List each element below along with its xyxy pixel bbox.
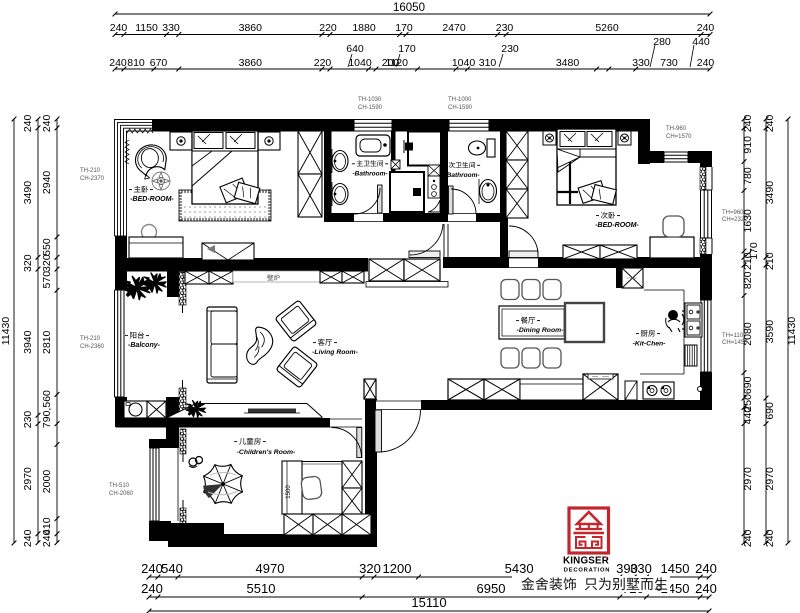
svg-text:3590: 3590 [764,320,776,344]
svg-text:240: 240 [22,114,34,132]
svg-text:CH-2060: CH-2060 [109,491,134,497]
svg-text:320: 320 [41,254,53,272]
svg-text:330: 330 [162,22,180,34]
svg-text:240: 240 [764,529,776,547]
svg-text:690: 690 [764,402,776,420]
svg-text:DECORATION: DECORATION [564,568,611,574]
svg-text:TH=1100: TH=1100 [722,333,747,339]
svg-text:2940: 2940 [41,171,53,195]
svg-text:790,560: 790,560 [41,390,53,428]
svg-text:330: 330 [630,561,652,576]
svg-text:-Bathroom-: -Bathroom- [444,172,479,179]
svg-text:670: 670 [150,57,168,69]
svg-text:TH-510: TH-510 [109,483,130,489]
svg-text:2000: 2000 [41,470,53,494]
svg-text:170: 170 [395,22,413,34]
svg-text:640: 640 [346,43,364,55]
svg-text:540: 540 [161,561,183,576]
svg-text:910: 910 [742,136,754,154]
svg-text:1150: 1150 [135,22,158,34]
svg-text:570: 570 [41,271,53,289]
svg-text:220: 220 [314,57,332,69]
svg-text:220: 220 [319,22,337,34]
svg-text:3860: 3860 [239,57,263,69]
svg-text:-Living Room-: -Living Room- [312,349,358,356]
svg-text:240: 240 [764,114,776,132]
svg-text:11430: 11430 [786,317,798,346]
svg-text:TH=960: TH=960 [722,210,744,216]
svg-text:230: 230 [501,43,519,55]
svg-text:11430: 11430 [0,317,12,346]
svg-text:-Children's Room-: -Children's Room- [237,449,296,456]
svg-text:320: 320 [22,254,34,272]
svg-text:240: 240 [141,581,163,596]
svg-text:TH-1030: TH-1030 [358,97,382,103]
svg-text:240: 240 [695,561,717,576]
svg-text:-Balcony-: -Balcony- [128,342,161,349]
svg-text:CH-1590: CH-1590 [448,105,473,111]
svg-text:240: 240 [742,114,754,132]
svg-text:440: 440 [692,36,710,48]
svg-text:16050: 16050 [393,2,425,14]
svg-text:240: 240 [697,22,715,34]
svg-text:CH=1450: CH=1450 [722,340,748,346]
svg-text:-Kit-Chen-: -Kit-Chen- [633,341,667,348]
svg-text:5510: 5510 [247,581,276,596]
svg-text:CH-1590: CH-1590 [358,105,383,111]
svg-text:1120: 1120 [385,57,408,69]
svg-text:240: 240 [742,529,754,547]
svg-text:320: 320 [359,561,381,576]
svg-text:240: 240 [697,57,715,69]
svg-text:1880: 1880 [352,22,376,34]
svg-text:TH-210: TH-210 [80,336,101,342]
svg-text:TH-210: TH-210 [80,168,101,174]
svg-text:690: 690 [742,376,754,394]
svg-text:2970: 2970 [764,467,776,491]
svg-text:CH=1570: CH=1570 [666,134,692,140]
svg-text:280: 280 [653,36,671,48]
svg-text:1040: 1040 [452,57,476,69]
svg-text:6950: 6950 [477,581,506,596]
svg-text:TH-1000: TH-1000 [448,97,472,103]
svg-text:3490: 3490 [22,181,34,205]
svg-text:15110: 15110 [411,595,446,610]
svg-text:440: 440 [742,407,754,425]
svg-text:-Dining Room-: -Dining Room- [517,327,565,334]
svg-text:2970: 2970 [742,467,754,491]
svg-text:330: 330 [632,57,650,69]
svg-text:TH-960: TH-960 [666,126,687,132]
svg-text:170: 170 [748,242,760,260]
svg-text:550: 550 [41,238,53,256]
svg-text:1450: 1450 [661,561,690,576]
svg-text:730: 730 [660,57,678,69]
svg-text:KINGSER: KINGSER [563,556,609,567]
svg-text:3480: 3480 [556,57,580,69]
svg-text:240: 240 [110,22,128,34]
svg-text:-BED-ROOM-: -BED-ROOM- [130,196,174,203]
svg-text:4970: 4970 [256,561,285,576]
svg-text:’: ’ [605,556,608,567]
svg-text:3490: 3490 [764,181,776,205]
svg-text:170: 170 [398,43,416,55]
svg-text:810: 810 [127,57,145,69]
svg-text:CH-2360: CH-2360 [80,344,105,350]
svg-text:210: 210 [764,252,776,270]
svg-text:2470: 2470 [442,22,466,34]
svg-text:230: 230 [22,411,34,429]
svg-text:240: 240 [41,529,53,547]
svg-text:CH-2370: CH-2370 [80,176,105,182]
svg-text:-Bathroom-: -Bathroom- [352,171,387,178]
svg-text:-BED-ROOM-: -BED-ROOM- [595,222,639,229]
svg-text:310: 310 [479,57,497,69]
svg-text:240: 240 [22,529,34,547]
svg-text:5430: 5430 [505,561,534,576]
svg-text:780: 780 [742,167,754,185]
svg-text:1500: 1500 [286,485,292,499]
svg-text:3940: 3940 [22,330,34,354]
svg-text:5260: 5260 [595,22,619,34]
svg-text:240: 240 [695,581,717,596]
svg-text:CH=2320: CH=2320 [722,217,748,223]
svg-text:230: 230 [496,22,514,34]
svg-text:2810: 2810 [41,330,53,354]
svg-text:1040: 1040 [348,57,372,69]
svg-text:820: 820 [742,271,754,289]
svg-text:240: 240 [109,57,127,69]
svg-text:2970: 2970 [22,467,34,491]
svg-text:3860: 3860 [239,22,263,34]
svg-text:1200: 1200 [383,561,412,576]
svg-text:240: 240 [41,114,53,132]
svg-text:240: 240 [141,561,163,576]
